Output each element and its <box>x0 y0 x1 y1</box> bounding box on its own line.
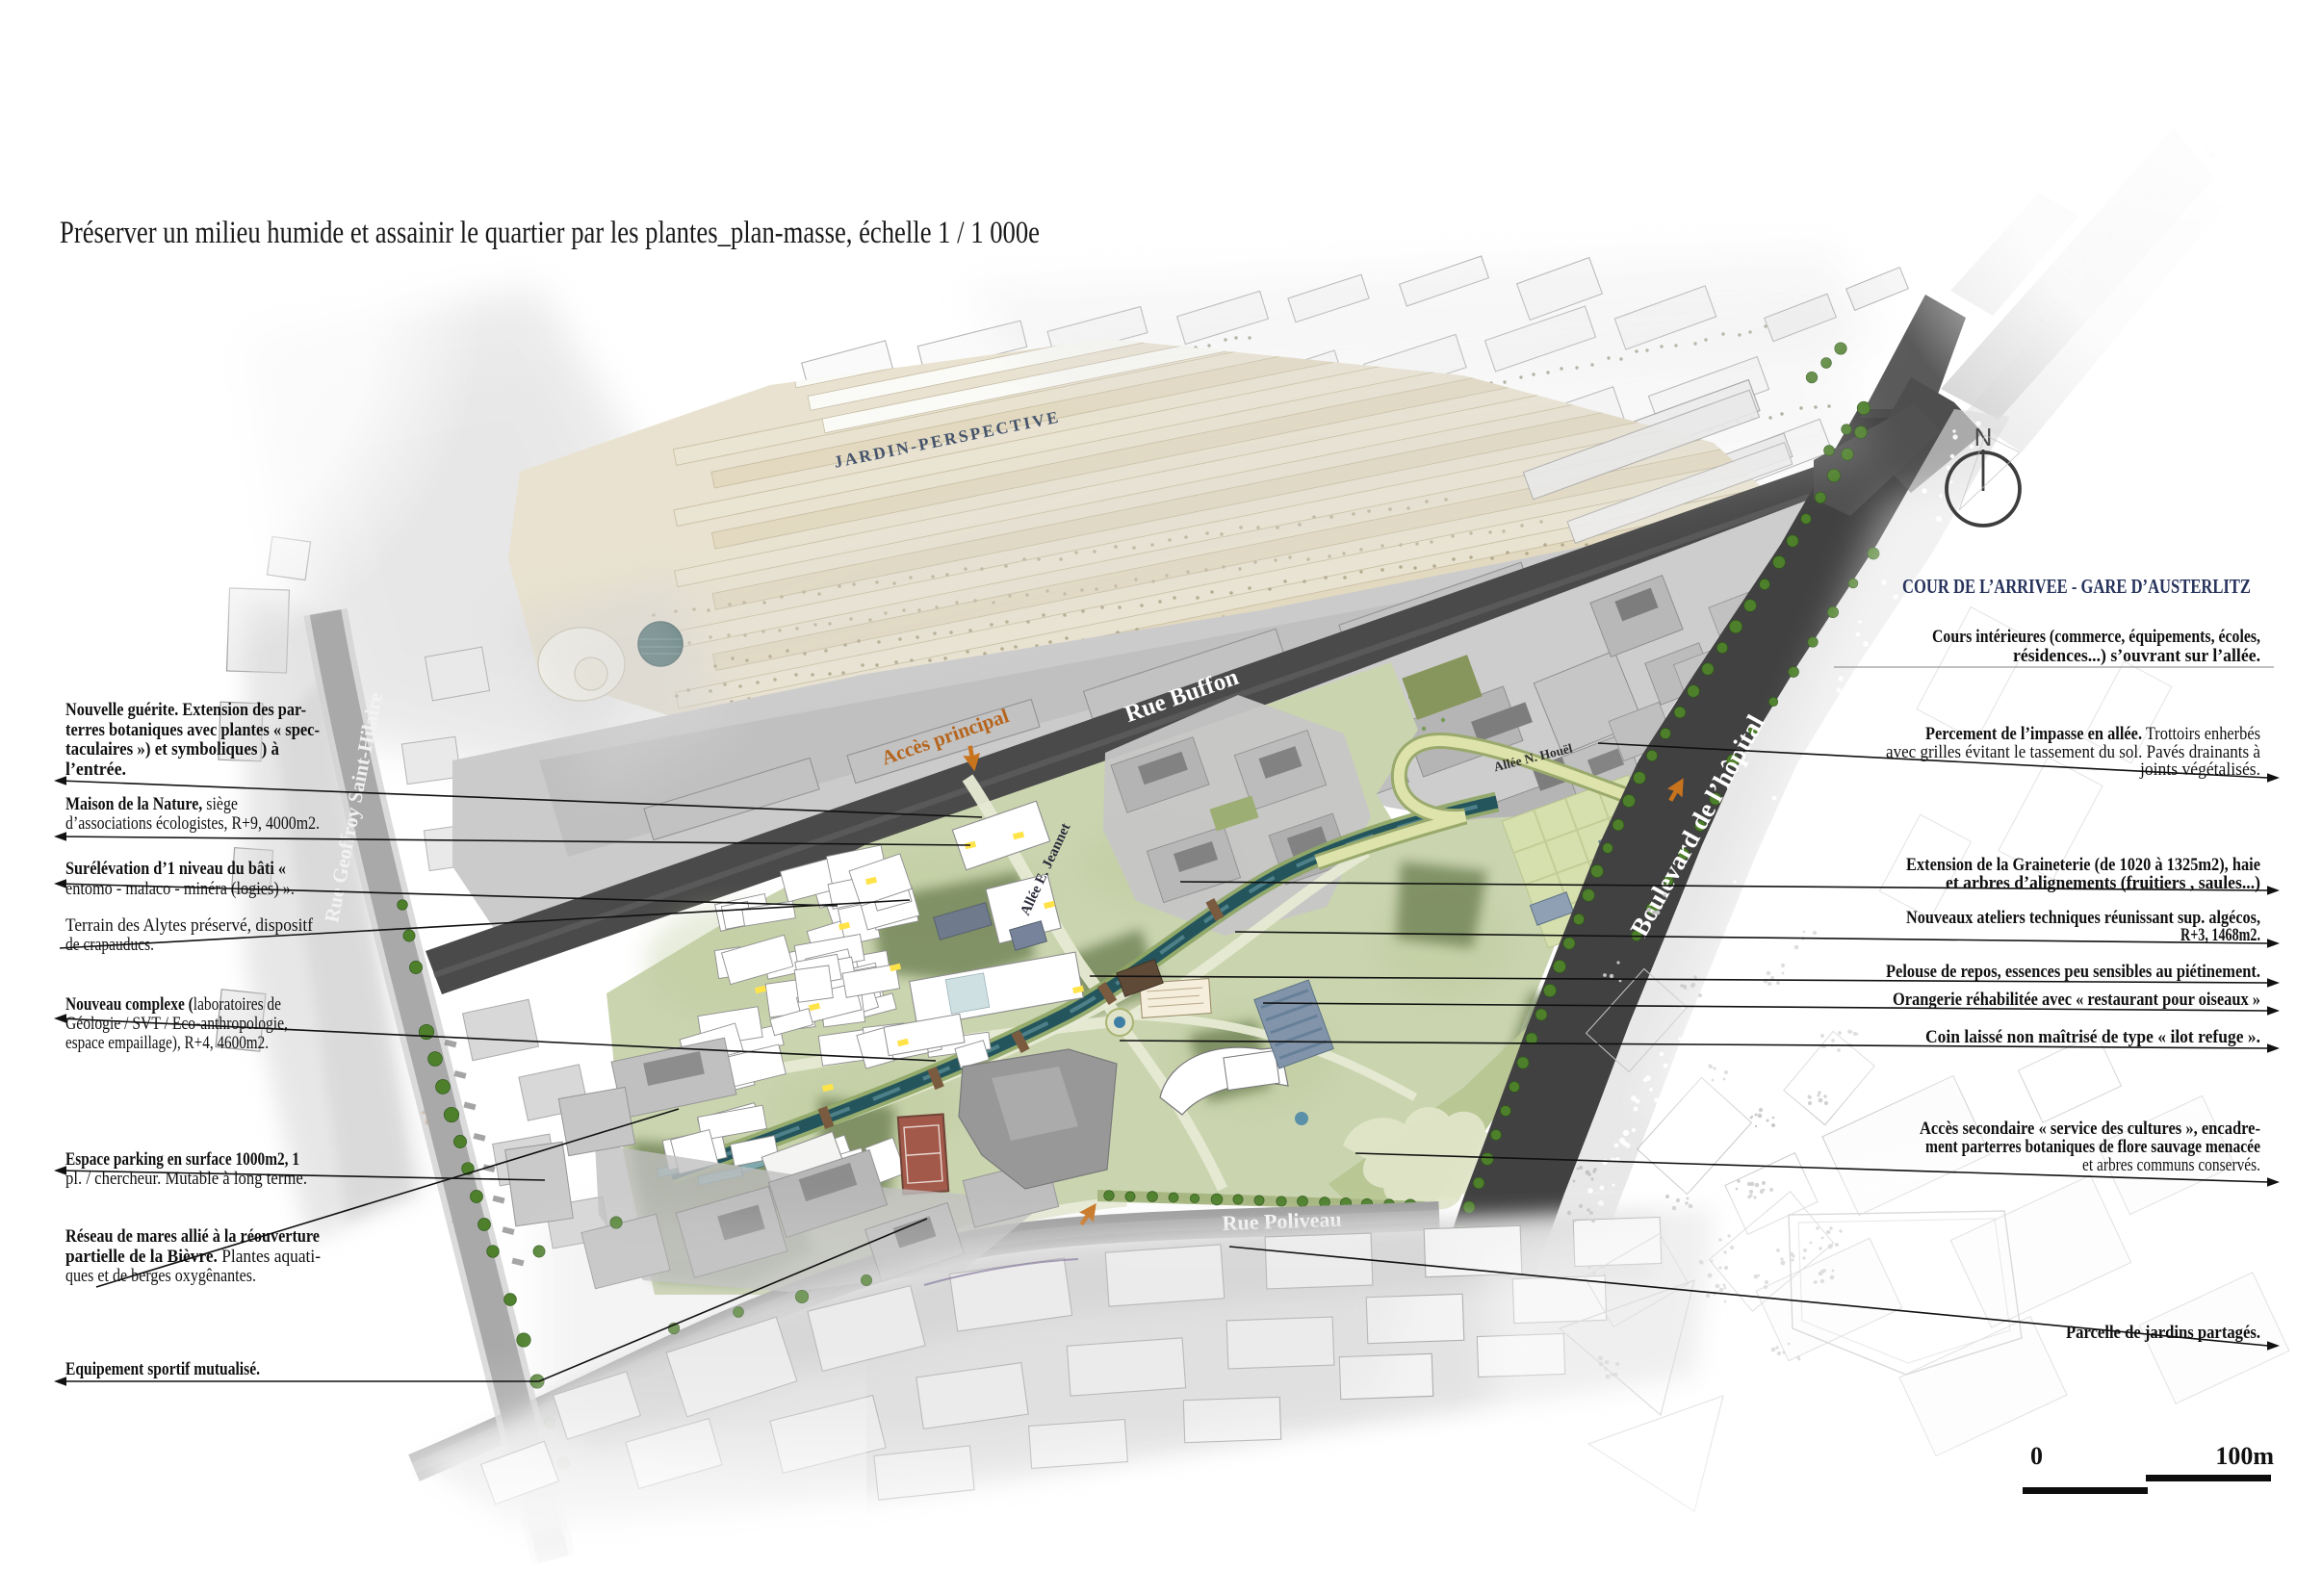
svg-text:Préserver un milieu humide et: Préserver un milieu humide et assainir l… <box>60 216 1040 250</box>
svg-text:Surélévation d’1 niveau du bât: Surélévation d’1 niveau du bâti « <box>65 859 286 879</box>
svg-text:ques et de berges oxygênantes.: ques et de berges oxygênantes. <box>65 1266 256 1286</box>
svg-text:Espace parking en surface 1000: Espace parking en surface 1000m2, 1 <box>65 1149 299 1170</box>
svg-text:d’associations écologistes, R+: d’associations écologistes, R+9, 4000m2. <box>65 813 320 834</box>
svg-text:Nouveau complexe (laboratoires: Nouveau complexe (laboratoires de <box>65 994 281 1015</box>
svg-text:Percement de l’impasse en allé: Percement de l’impasse en allée. Trottoi… <box>1925 724 2260 744</box>
svg-text:Pelouse de repos, essences peu: Pelouse de repos, essences peu sensibles… <box>1886 962 2260 982</box>
svg-text:l’entrée.: l’entrée. <box>65 759 126 780</box>
svg-text:Maison de la Nature, siège: Maison de la Nature, siège <box>65 794 238 814</box>
svg-text:Terrain des Alytes préservé,: Terrain des Alytes préservé, dispositf <box>65 915 314 936</box>
svg-text:100m: 100m <box>2215 1442 2274 1470</box>
svg-text:COUR DE L’ARRIVEE - GARE D’AUS: COUR DE L’ARRIVEE - GARE D’AUSTERLITZ <box>1902 575 2251 598</box>
svg-text:résidences...) s’ouvrant sur l: résidences...) s’ouvrant sur l’allée. <box>2013 646 2260 666</box>
svg-text:taculaires ») et symboliques ): taculaires ») et symboliques ) à <box>65 739 279 759</box>
svg-text:Equipement sportif mutualisé.: Equipement sportif mutualisé. <box>65 1359 260 1379</box>
svg-text:0: 0 <box>2030 1442 2043 1470</box>
svg-text:espace empaillage), R+4, 4600m: espace empaillage), R+4, 4600m2. <box>65 1033 269 1053</box>
svg-text:Cours intérieures (commerce, é: Cours intérieures (commerce, équipements… <box>1932 627 2260 647</box>
svg-text:Accès secondaire « service des: Accès secondaire « service des cultures … <box>1920 1119 2260 1139</box>
svg-text:Extension de la Graineterie (d: Extension de la Graineterie (de 1020 à 1… <box>1906 855 2260 875</box>
svg-text:ment parterres botaniques de f: ment parterres botaniques de flore sauva… <box>1925 1137 2260 1157</box>
svg-text:Nouvelle guérite. Extension de: Nouvelle guérite. Extension des par- <box>65 700 306 720</box>
svg-text:et arbres communs conservés.: et arbres communs conservés. <box>2082 1155 2260 1175</box>
svg-text:Réseau de mares allié à la réo: Réseau de mares allié à la réouverture <box>65 1226 320 1247</box>
svg-text:Orangerie réhabilitée avec «: Orangerie réhabilitée avec « restaurant … <box>1893 990 2260 1010</box>
svg-text:Parcelle de jardins partagés.: Parcelle de jardins partagés. <box>2066 1323 2260 1343</box>
svg-text:terres botaniques avec plantes: terres botaniques avec plantes « spec- <box>65 720 320 740</box>
svg-text:Coin laissé non maîtrisé de ty: Coin laissé non maîtrisé de type « ilot … <box>1925 1027 2260 1047</box>
